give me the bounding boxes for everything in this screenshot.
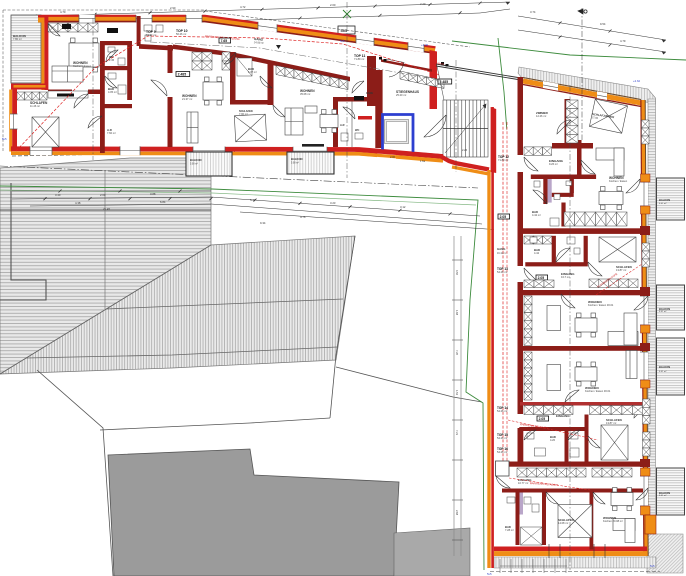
svg-text:21.37 m²: 21.37 m² (182, 97, 192, 101)
svg-text:46.42 m²: 46.42 m² (497, 252, 507, 255)
svg-text:13.87 m²: 13.87 m² (606, 421, 616, 425)
svg-text:2.485: 2.485 (440, 80, 449, 84)
svg-text:+2.62: +2.62 (633, 79, 641, 83)
svg-text:6.37 m²: 6.37 m² (248, 70, 257, 74)
svg-text:Kochen / Essen: Kochen / Essen (73, 64, 92, 68)
svg-text:61.17 m²: 61.17 m² (146, 33, 156, 37)
svg-text:7.20: 7.20 (455, 350, 459, 356)
svg-text:54.26 m²: 54.26 m² (497, 436, 507, 440)
svg-text:Kochen / Essen: Kochen / Essen (609, 179, 628, 183)
svg-text:2.45: 2.45 (109, 58, 115, 62)
svg-text:14.08 m²: 14.08 m² (558, 521, 568, 525)
svg-text:1.52: 1.52 (455, 390, 459, 396)
svg-text:4.72: 4.72 (240, 5, 246, 9)
svg-text:11.46 m²: 11.46 m² (30, 104, 40, 108)
svg-text:2.00: 2.00 (390, 155, 396, 159)
svg-text:54.26 m²: 54.26 m² (497, 450, 507, 454)
svg-text:2.05: 2.05 (538, 276, 545, 280)
svg-text:5.08 m²: 5.08 m² (190, 163, 198, 166)
svg-text:2.05: 2.05 (500, 215, 507, 219)
svg-text:71.89 m²: 71.89 m² (354, 57, 364, 61)
svg-text:7.28 m²: 7.28 m² (505, 528, 514, 532)
svg-text:6.01 m²: 6.01 m² (659, 310, 667, 313)
svg-text:4.38: 4.38 (75, 201, 81, 205)
svg-text:5x5: 5x5 (650, 564, 655, 568)
svg-text:35.08 m²: 35.08 m² (300, 92, 310, 96)
svg-text:7.80 m²: 7.80 m² (13, 37, 22, 41)
svg-text:24.88 m²: 24.88 m² (254, 40, 265, 45)
svg-text:4.79: 4.79 (620, 39, 626, 43)
svg-text:EINGANG: EINGANG (556, 414, 570, 418)
svg-text:3.12: 3.12 (400, 205, 406, 209)
svg-text:BALKON: BALKON (659, 198, 670, 202)
svg-text:6.01 m²: 6.01 m² (659, 370, 667, 373)
svg-text:1 ba: 1 ba (420, 159, 426, 163)
svg-text:5x5: 5x5 (487, 572, 492, 576)
svg-text:3.88: 3.88 (150, 192, 156, 196)
svg-text:4.05 m²: 4.05 m² (108, 90, 117, 94)
svg-text:21.45: 21.45 (103, 207, 110, 211)
svg-text:25.20 m²: 25.20 m² (396, 93, 406, 97)
svg-text:Kochen 20.08 m²: Kochen 20.08 m² (603, 519, 623, 523)
svg-text:4.76: 4.76 (300, 215, 306, 219)
svg-text:7.60 m²: 7.60 m² (107, 131, 116, 135)
svg-text:7.21: 7.21 (455, 430, 459, 436)
svg-text:4.20: 4.20 (550, 438, 556, 442)
svg-text:Kochen / Essen 30.01: Kochen / Essen 30.01 (588, 303, 614, 307)
svg-text:5.47: 5.47 (250, 198, 256, 202)
svg-text:BALKON: BALKON (190, 158, 202, 162)
svg-text:9.34: 9.34 (260, 221, 266, 225)
svg-text:2.00: 2.00 (330, 3, 336, 7)
svg-text:2.20: 2.20 (420, 2, 426, 6)
svg-text:5x5: 5x5 (340, 39, 345, 43)
svg-text:2.68: 2.68 (455, 510, 459, 516)
svg-text:13.87 m²: 13.87 m² (616, 268, 626, 272)
svg-text:3.74: 3.74 (530, 10, 536, 14)
svg-text:9.26 m²: 9.26 m² (549, 162, 558, 166)
svg-text:3.23: 3.23 (330, 201, 336, 205)
svg-text:A.R: A.R (340, 123, 345, 127)
svg-text:9.17 m²: 9.17 m² (561, 275, 570, 279)
svg-text:3.40: 3.40 (55, 193, 61, 197)
svg-text:2.485: 2.485 (178, 72, 187, 76)
svg-text:12.26 m²: 12.26 m² (536, 114, 546, 118)
svg-text:+1.40: +1.40 (421, 43, 429, 47)
svg-text:BALKON: BALKON (659, 365, 670, 369)
svg-text:2.26: 2.26 (462, 148, 468, 152)
svg-text:GANG: GANG (366, 92, 373, 95)
svg-text:71.89 m²: 71.89 m² (498, 158, 508, 162)
svg-text:4.42: 4.42 (534, 251, 540, 255)
svg-text:7.90 m²: 7.90 m² (239, 112, 248, 116)
svg-text:56.26 m²: 56.26 m² (176, 32, 186, 36)
svg-text:54.26 m²: 54.26 m² (497, 409, 507, 413)
svg-text:6.01 m²: 6.01 m² (659, 494, 667, 497)
svg-text:4.50: 4.50 (455, 270, 459, 276)
svg-text:10.77 m²: 10.77 m² (518, 481, 528, 485)
svg-text:54.26 m²: 54.26 m² (497, 270, 507, 274)
svg-text:7.65: 7.65 (221, 39, 228, 43)
svg-text:BALKON: BALKON (291, 157, 303, 161)
svg-text:Kochen / Essen 30.01: Kochen / Essen 30.01 (585, 389, 611, 393)
svg-text:4.42 m²: 4.42 m² (532, 213, 541, 217)
svg-text:6.84: 6.84 (160, 200, 166, 204)
svg-text:1.68: 1.68 (455, 310, 459, 316)
svg-text:5x5: 5x5 (2, 137, 7, 141)
svg-text:6.01 m²: 6.01 m² (659, 202, 667, 205)
svg-text:2.05: 2.05 (539, 417, 546, 421)
svg-text:4.70: 4.70 (60, 10, 66, 14)
svg-text:GANG: GANG (497, 247, 505, 251)
svg-text:WC: WC (355, 128, 359, 132)
svg-text:2.00: 2.00 (100, 193, 106, 197)
svg-text:9.54: 9.54 (600, 22, 606, 26)
svg-text:2.90: 2.90 (170, 6, 176, 10)
svg-text:5.08 m²: 5.08 m² (291, 162, 299, 165)
